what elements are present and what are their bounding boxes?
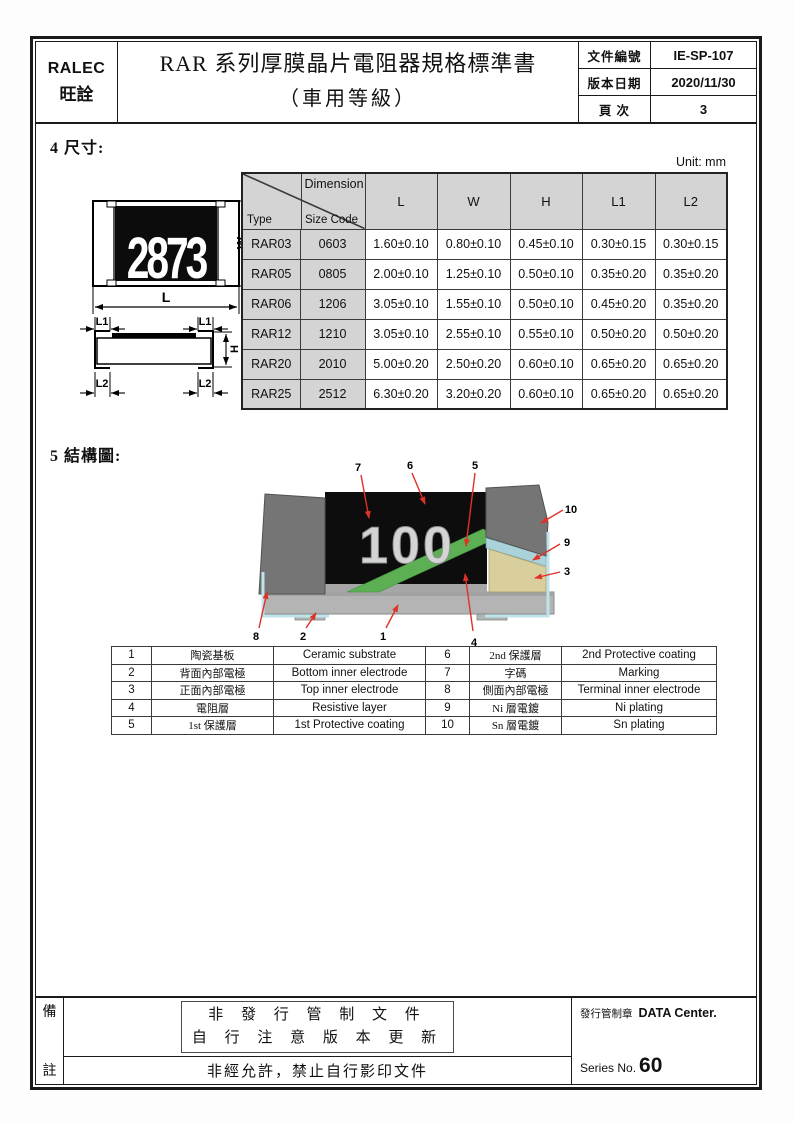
legend-cn: 2nd 保護層 xyxy=(470,647,562,665)
cell-type: RAR06 xyxy=(242,289,300,319)
cell-l2: 0.35±0.20 xyxy=(655,259,727,289)
callout-5: 5 xyxy=(472,460,478,472)
legend-row: 3 正面內部電極 Top inner electrode 8 側面內部電極 Te… xyxy=(112,682,717,700)
cell-l1: 0.30±0.15 xyxy=(582,229,655,259)
cell-size: 0805 xyxy=(300,259,365,289)
legend-no: 6 xyxy=(426,647,470,665)
structure-diagram: 100 7 6 5 10 9 3 8 2 1 4 xyxy=(237,456,597,654)
legend-no: 2 xyxy=(112,664,152,682)
cell-l2: 0.65±0.20 xyxy=(655,379,727,409)
version-date-label: 版本日期 xyxy=(579,69,651,95)
cell-l: 5.00±0.20 xyxy=(365,349,437,379)
legend-no: 5 xyxy=(112,717,152,735)
cell-l1: 0.65±0.20 xyxy=(582,349,655,379)
dimension-table: Dimension Type Size Code L W H L1 L2 RAR… xyxy=(241,172,728,410)
doc-no-value: IE-SP-107 xyxy=(651,42,756,68)
footer-note-column: 備 註 xyxy=(36,998,64,1084)
h-dim-label: H xyxy=(229,345,241,353)
cell-l2: 0.35±0.20 xyxy=(655,289,727,319)
page-value: 3 xyxy=(651,96,756,122)
col-header-l1: L1 xyxy=(582,173,655,229)
dimension-drawings: 2873 W L L1 L1 xyxy=(52,186,272,441)
legend-en: Ceramic substrate xyxy=(274,647,426,665)
legend-cn: Sn 層電鍍 xyxy=(470,717,562,735)
document-page: RALEC 旺詮 RAR 系列厚膜晶片電阻器規格標準書 （車用等級） 文件編號 … xyxy=(30,36,762,1090)
table-row: RAR06 1206 3.05±0.10 1.55±0.10 0.50±0.10… xyxy=(242,289,727,319)
l-dim-label: L xyxy=(162,289,171,305)
legend-cn: 正面內部電極 xyxy=(152,682,274,700)
table-row: RAR25 2512 6.30±0.20 3.20±0.20 0.60±0.10… xyxy=(242,379,727,409)
cell-type: RAR05 xyxy=(242,259,300,289)
col-header-l: L xyxy=(365,173,437,229)
legend-cn: 背面內部電極 xyxy=(152,664,274,682)
note-label-top: 備 xyxy=(43,1001,57,1021)
section-5-heading: 5 結構圖: xyxy=(50,442,121,466)
legend-en: Terminal inner electrode xyxy=(562,682,717,700)
l2-right-label: L2 xyxy=(199,378,212,390)
legend-no: 1 xyxy=(112,647,152,665)
callout-1: 1 xyxy=(380,631,386,643)
page-label: 頁 次 xyxy=(579,96,651,122)
stamp-label: 發行管制章 xyxy=(580,1009,633,1020)
copy-restriction-text: 非經允許，禁止自行影印文件 xyxy=(207,1060,428,1081)
company-name-cn: 旺詮 xyxy=(60,80,94,105)
cell-w: 3.20±0.20 xyxy=(437,379,510,409)
cell-type: RAR20 xyxy=(242,349,300,379)
cell-l: 1.60±0.10 xyxy=(365,229,437,259)
legend-row: 5 1st 保護層 1st Protective coating 10 Sn 層… xyxy=(112,717,717,735)
cell-h: 0.50±0.10 xyxy=(510,289,582,319)
cell-w: 1.55±0.10 xyxy=(437,289,510,319)
left-terminal-cap xyxy=(259,494,325,594)
info-row-version-date: 版本日期 2020/11/30 xyxy=(579,69,756,96)
corner-dimension-label: Dimension xyxy=(303,177,365,191)
chip-side-view: L1 L1 H L2 L2 xyxy=(80,316,241,397)
dimension-table-header: Dimension Type Size Code L W H L1 L2 xyxy=(242,173,727,229)
legend-cn: 電阻層 xyxy=(152,699,274,717)
cell-size: 1206 xyxy=(300,289,365,319)
legend-en: Ni plating xyxy=(562,699,717,717)
cell-l2: 0.50±0.20 xyxy=(655,319,727,349)
document-info-table: 文件編號 IE-SP-107 版本日期 2020/11/30 頁 次 3 xyxy=(578,42,756,122)
corner-sizecode-label: Size Code xyxy=(305,214,358,226)
l1-left-label: L1 xyxy=(96,316,109,328)
info-row-doc-no: 文件編號 IE-SP-107 xyxy=(579,42,756,69)
legend-en: Sn plating xyxy=(562,717,717,735)
resistive-strip xyxy=(112,333,196,338)
table-row: RAR05 0805 2.00±0.10 1.25±0.10 0.50±0.10… xyxy=(242,259,727,289)
cell-size: 2010 xyxy=(300,349,365,379)
legend-cn: Ni 層電鍍 xyxy=(470,699,562,717)
legend-cn: 側面內部電極 xyxy=(470,682,562,700)
resistor-marking-100: 100 xyxy=(359,517,455,575)
legend-en: Marking xyxy=(562,664,717,682)
legend-no: 3 xyxy=(112,682,152,700)
legend-no: 8 xyxy=(426,682,470,700)
cell-l: 6.30±0.20 xyxy=(365,379,437,409)
footer-stamp-cell: 發行管制章DATA Center. Series No.60 xyxy=(572,998,756,1084)
cell-size: 0603 xyxy=(300,229,365,259)
cell-w: 2.50±0.20 xyxy=(437,349,510,379)
company-logo-block: RALEC 旺詮 xyxy=(36,42,118,122)
document-page-inner: RALEC 旺詮 RAR 系列厚膜晶片電阻器規格標準書 （車用等級） 文件編號 … xyxy=(35,41,757,1085)
cell-h: 0.60±0.10 xyxy=(510,349,582,379)
cell-l1: 0.35±0.20 xyxy=(582,259,655,289)
legend-cn: 1st 保護層 xyxy=(152,717,274,735)
cell-w: 2.55±0.10 xyxy=(437,319,510,349)
cell-w: 1.25±0.10 xyxy=(437,259,510,289)
legend-no: 7 xyxy=(426,664,470,682)
info-row-page: 頁 次 3 xyxy=(579,96,756,122)
legend-row: 1 陶瓷基板 Ceramic substrate 6 2nd 保護層 2nd P… xyxy=(112,647,717,665)
document-footer: 備 註 非 發 行 管 制 文 件 自 行 注 意 版 本 更 新 發行管制章D… xyxy=(36,996,756,1084)
series-value: 60 xyxy=(639,1054,662,1077)
control-notice-box: 非 發 行 管 制 文 件 自 行 注 意 版 本 更 新 xyxy=(181,1001,454,1054)
cell-l2: 0.65±0.20 xyxy=(655,349,727,379)
cell-l1: 0.50±0.20 xyxy=(582,319,655,349)
structure-legend-table: 1 陶瓷基板 Ceramic substrate 6 2nd 保護層 2nd P… xyxy=(111,646,717,735)
cell-l1: 0.65±0.20 xyxy=(582,379,655,409)
cell-l1: 0.45±0.20 xyxy=(582,289,655,319)
cell-size: 1210 xyxy=(300,319,365,349)
cell-w: 0.80±0.10 xyxy=(437,229,510,259)
cell-type: RAR12 xyxy=(242,319,300,349)
title-block: RAR 系列厚膜晶片電阻器規格標準書 （車用等級） xyxy=(118,42,578,122)
version-date-value: 2020/11/30 xyxy=(651,69,756,95)
unit-note: Unit: mm xyxy=(241,155,726,169)
cell-h: 0.50±0.10 xyxy=(510,259,582,289)
table-row: RAR12 1210 3.05±0.10 2.55±0.10 0.55±0.10… xyxy=(242,319,727,349)
document-title: RAR 系列厚膜晶片電阻器規格標準書 xyxy=(118,46,578,78)
callout-2: 2 xyxy=(300,631,306,643)
legend-en: Top inner electrode xyxy=(274,682,426,700)
legend-cn: 陶瓷基板 xyxy=(152,647,274,665)
document-header: RALEC 旺詮 RAR 系列厚膜晶片電阻器規格標準書 （車用等級） 文件編號 … xyxy=(36,42,756,124)
corner-type-label: Type xyxy=(247,214,272,226)
col-header-l2: L2 xyxy=(655,173,727,229)
notice-line-2: 自 行 注 意 版 本 更 新 xyxy=(192,1027,443,1050)
stamp-value: DATA Center. xyxy=(639,1006,717,1020)
col-header-h: H xyxy=(510,173,582,229)
doc-no-label: 文件編號 xyxy=(579,42,651,68)
legend-cn: 字碼 xyxy=(470,664,562,682)
chip-top-view: 2873 W L xyxy=(93,201,255,314)
legend-no: 4 xyxy=(112,699,152,717)
cell-type: RAR03 xyxy=(242,229,300,259)
legend-en: 2nd Protective coating xyxy=(562,647,717,665)
callout-3: 3 xyxy=(564,566,570,578)
legend-no: 10 xyxy=(426,717,470,735)
notice-line-1: 非 發 行 管 制 文 件 xyxy=(192,1004,443,1027)
cell-h: 0.60±0.10 xyxy=(510,379,582,409)
legend-row: 2 背面內部電極 Bottom inner electrode 7 字碼 Mar… xyxy=(112,664,717,682)
legend-en: Resistive layer xyxy=(274,699,426,717)
table-row: RAR20 2010 5.00±0.20 2.50±0.20 0.60±0.10… xyxy=(242,349,727,379)
cell-size: 2512 xyxy=(300,379,365,409)
document-subtitle: （車用等級） xyxy=(118,82,578,111)
legend-row: 4 電阻層 Resistive layer 9 Ni 層電鍍 Ni platin… xyxy=(112,699,717,717)
callout-10: 10 xyxy=(565,504,577,516)
callout-9: 9 xyxy=(564,537,570,549)
cell-l: 3.05±0.10 xyxy=(365,319,437,349)
table-corner-cell: Dimension Type Size Code xyxy=(242,173,365,229)
table-row: RAR03 0603 1.60±0.10 0.80±0.10 0.45±0.10… xyxy=(242,229,727,259)
legend-en: 1st Protective coating xyxy=(274,717,426,735)
callout-7: 7 xyxy=(355,462,361,474)
cell-type: RAR25 xyxy=(242,379,300,409)
col-header-w: W xyxy=(437,173,510,229)
l1-right-label: L1 xyxy=(199,316,212,328)
company-name-en: RALEC xyxy=(48,60,106,78)
series-number-line: Series No.60 xyxy=(580,1054,662,1078)
cell-l: 2.00±0.10 xyxy=(365,259,437,289)
cell-h: 0.45±0.10 xyxy=(510,229,582,259)
section-4-heading: 4 尺寸: xyxy=(50,134,104,158)
series-label: Series No. xyxy=(580,1061,636,1075)
legend-en: Bottom inner electrode xyxy=(274,664,426,682)
chip-marking-2873: 2873 xyxy=(127,226,208,291)
footer-notice-cell: 非 發 行 管 制 文 件 自 行 注 意 版 本 更 新 xyxy=(64,998,572,1057)
note-label-bottom: 註 xyxy=(43,1060,57,1080)
cell-l: 3.05±0.10 xyxy=(365,289,437,319)
legend-no: 9 xyxy=(426,699,470,717)
cell-h: 0.55±0.10 xyxy=(510,319,582,349)
callout-8: 8 xyxy=(253,631,259,643)
footer-copy-restriction-cell: 非經允許，禁止自行影印文件 xyxy=(64,1057,572,1084)
cell-l2: 0.30±0.15 xyxy=(655,229,727,259)
l2-left-label: L2 xyxy=(96,378,109,390)
callout-6: 6 xyxy=(407,460,413,472)
